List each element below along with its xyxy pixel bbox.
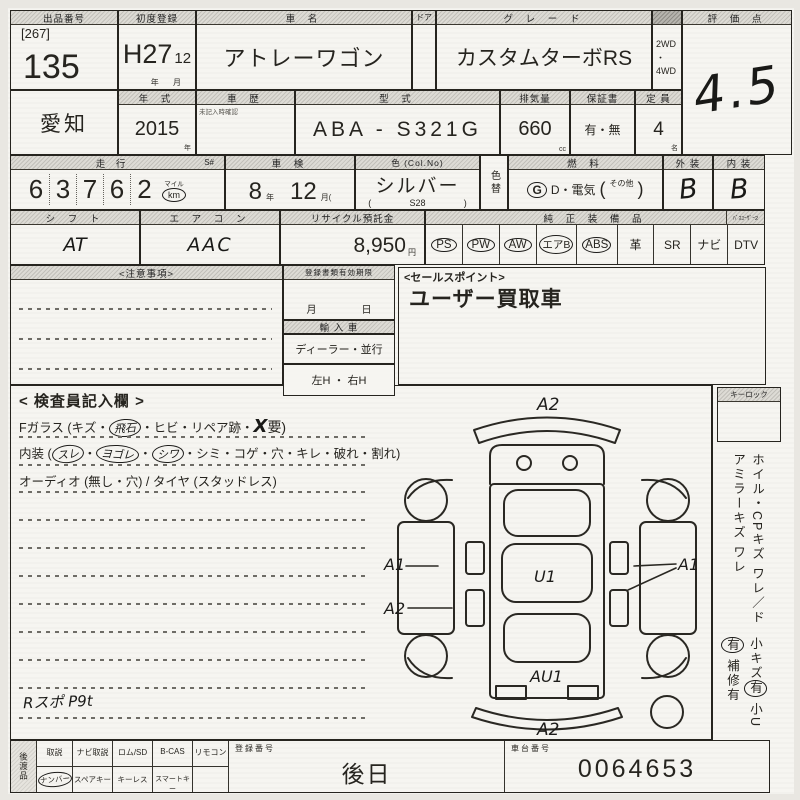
fuel-other: その他 xyxy=(610,178,634,189)
equipment-cell: 純 正 装 備 品 ﾊﾞｽﾕｰｻﾞｰ2 PS PW AW エアB ABS 革 S… xyxy=(425,210,765,265)
notes-label: <注意事項> xyxy=(11,266,282,280)
interior-grade-label: 内 装 xyxy=(714,156,764,170)
score-cell: 評 価 点 4.5 xyxy=(682,10,792,155)
equipment-sunroof: SR xyxy=(653,225,690,264)
import-type-cell: ディーラー・並行 xyxy=(283,334,395,364)
right-door-window xyxy=(610,542,628,574)
exterior-grade-cell: 外 装 B xyxy=(663,155,713,210)
inspector-ruled-line xyxy=(19,631,369,633)
fuel-options: D・電気 xyxy=(551,181,596,198)
warranty-label: 保証書 xyxy=(571,91,634,105)
inspector-ruled-line xyxy=(19,491,369,493)
equipment-abs: ABS xyxy=(582,237,611,253)
door-cell: ドア xyxy=(412,10,436,90)
equipment-aw: AW xyxy=(504,238,532,252)
car-name-cell: 車 名 アトレーワゴン xyxy=(196,10,412,90)
small-dent-label: 小U xyxy=(748,702,762,728)
bottom-band: 後渡品 取説 ナンバー ナビ取説 スペアキー ロム/SD キーレス B-CAS … xyxy=(10,740,770,793)
small-scratch-yes-circled: 有 xyxy=(744,680,767,697)
fglass-mid: ・ヒビ・リペア跡・ xyxy=(141,421,254,435)
equipment-leather: 革 xyxy=(617,225,654,264)
equipment-label: 純 正 装 備 品 xyxy=(543,211,646,225)
region-value: 愛知 xyxy=(11,91,117,154)
inspector-ruled-line xyxy=(19,603,369,605)
warranty-cell: 保証書 有・無 xyxy=(570,90,635,155)
recycle-fee-value: 8,950 xyxy=(353,234,406,258)
drive-dot: ・ xyxy=(656,51,665,64)
rear-glass xyxy=(504,614,590,662)
fuel-label: 燃 料 xyxy=(509,156,662,170)
aircon-label: エ ア コ ン xyxy=(141,211,279,225)
damage-code-roof-u1: U1 xyxy=(534,567,556,586)
interior-grade-cell: 内 装 B xyxy=(713,155,765,210)
door-label: ドア xyxy=(413,11,435,25)
damage-code-right-a1: A1 xyxy=(677,555,699,574)
history-label: 車 歴 xyxy=(197,91,294,105)
damage-code-rear-a2: A2 xyxy=(536,720,559,738)
spare-key-label: スペアキー xyxy=(73,774,112,785)
doc-expiry-month: 月 xyxy=(307,301,317,316)
import-header-cell: 輸 入 車 xyxy=(283,320,395,334)
stamp-circle xyxy=(651,696,683,728)
doc-expiry-day: 日 xyxy=(362,301,372,316)
right-side-panel xyxy=(640,522,696,634)
notes-cell: <注意事項> xyxy=(10,265,283,385)
displacement-unit: cc xyxy=(559,146,566,153)
mileage-digit: 6 xyxy=(104,174,131,205)
color-change-cell: 色替 xyxy=(480,155,508,210)
remote-label: リモコン xyxy=(193,747,228,758)
year-unit: 年 xyxy=(184,143,191,153)
wheel-front-right xyxy=(647,479,689,521)
damage-code-rear-au1: AU1 xyxy=(529,667,563,686)
left-door-window xyxy=(466,542,484,574)
sales-point-value: ユーザー買取車 xyxy=(409,283,563,313)
model-cell: 型 式 ABA - S321G xyxy=(295,90,500,155)
handle-value: 左H ・ 右H xyxy=(284,365,394,395)
shift-cell: シ フ ト AT xyxy=(10,210,140,265)
warranty-value: 有・無 xyxy=(571,105,634,154)
small-dent-yes-circled: 有 xyxy=(721,637,744,654)
interior-circled-scuff: スレ xyxy=(51,443,85,464)
handle-cell: 左H ・ 右H xyxy=(283,364,395,396)
mileage-cell: 走 行 S# 6 3 7 6 2 マイル km xyxy=(10,155,225,210)
equipment-airbag: エアB xyxy=(539,235,573,254)
later-items-label: 後渡品 xyxy=(11,741,37,792)
bcas-label: B-CAS xyxy=(153,747,192,756)
color-label: 色 (Col.No) xyxy=(356,156,479,170)
inspector-hand-note: Rスポ P9t xyxy=(23,690,93,713)
fuel-paren-right: ) xyxy=(638,179,644,200)
wheel-front-left xyxy=(405,479,447,521)
equipment-sub-label: ﾊﾞｽﾕｰｻﾞｰ2 xyxy=(726,211,764,224)
displacement-cell: 排気量 660 cc xyxy=(500,90,570,155)
color-paren-right: ) xyxy=(464,198,467,208)
rom-sd-column: ロム/SD キーレス xyxy=(113,741,153,792)
mileage-digit: 3 xyxy=(50,174,77,205)
front-bumper xyxy=(474,418,620,444)
grade-value: カスタムターボRS xyxy=(437,25,651,89)
grade-cell: グ レ ー ド カスタムターボRS xyxy=(436,10,652,90)
damage-code-left-a2: A2 xyxy=(383,599,405,618)
interior-grade-value: B xyxy=(729,173,750,205)
number-plate-circled: ナンバー xyxy=(37,771,72,789)
region-cell: 愛知 xyxy=(10,90,118,155)
drive-cell: 2WD ・ 4WD xyxy=(652,10,682,90)
capacity-cell: 定 員 4 名 xyxy=(635,90,682,155)
keyless-label: キーレス xyxy=(113,774,152,785)
inspector-title: < 検査員記入欄 > xyxy=(19,390,145,411)
notes-ruled-line xyxy=(19,338,272,340)
notes-ruled-line xyxy=(19,308,272,310)
grade-label: グ レ ー ド xyxy=(437,11,651,25)
fuel-cell: 燃 料 G D・電気 ( その他 ) xyxy=(508,155,663,210)
small-scratch-label: 小キズ xyxy=(748,637,762,681)
equipment-ps: PS xyxy=(431,238,456,252)
first-registration-cell: 初度登録 H27 12 年 月 xyxy=(118,10,196,90)
windshield xyxy=(504,490,590,536)
sidebar: キーロック ホイル・CPキズ ワレ／ドアミラーキズ ワレ 小キズ有 小U有 補修… xyxy=(712,385,792,740)
color-change-label: 色替 xyxy=(481,156,507,209)
recycle-fee-cell: リサイクル預託金 8,950 円 xyxy=(280,210,425,265)
year-label: 年 式 xyxy=(119,91,195,105)
car-name-value: アトレーワゴン xyxy=(197,25,411,89)
car-name-label: 車 名 xyxy=(197,11,411,25)
aircon-value: AAC xyxy=(187,234,232,256)
chassis-number-value: 0064653 xyxy=(505,755,769,784)
manual-column: 取説 ナンバー xyxy=(37,741,73,792)
color-code: S28 xyxy=(409,198,425,208)
sep-dot: ・ xyxy=(84,447,97,461)
chassis-number-box: 車台番号 0064653 xyxy=(505,741,769,792)
interior-suffix: ・シミ・コゲ・穴・キレ・破れ・割れ) xyxy=(184,447,401,461)
import-type-value: ディーラー・並行 xyxy=(284,335,394,363)
keylock-label: キーロック xyxy=(718,388,780,402)
year-cell: 年 式 2015 年 xyxy=(118,90,196,155)
registration-number-box: 登録番号 後日 xyxy=(229,741,505,792)
drive-2wd: 2WD xyxy=(656,39,676,49)
doc-expiry-label: 登録書類有効期限 xyxy=(284,266,394,280)
exterior-grade-value: B xyxy=(677,173,699,206)
capacity-unit: 名 xyxy=(671,143,678,153)
sidebar-note-marks: 小キズ有 小U有 補修有 xyxy=(721,637,767,733)
navi-manual-label: ナビ取説 xyxy=(73,747,112,758)
color-value: シルバー xyxy=(375,171,459,198)
sep-dot: ・ xyxy=(139,447,152,461)
recycle-fee-unit: 円 xyxy=(408,247,416,258)
sidebar-note-wheel-mirror: ホイル・CPキズ ワレ／ドアミラーキズ ワレ xyxy=(721,453,767,633)
first-registration-month: 12 xyxy=(174,50,191,67)
body-outline xyxy=(490,484,604,698)
left-rear-window xyxy=(466,590,484,626)
inspector-ruled-line xyxy=(19,547,369,549)
hood-outline xyxy=(490,445,604,484)
fglass-suffix: 要) xyxy=(267,419,286,435)
shift-label: シ フ ト xyxy=(11,211,139,225)
navi-manual-column: ナビ取説 スペアキー xyxy=(73,741,113,792)
history-cell: 車 歴 未記入時確認 xyxy=(196,90,295,155)
color-paren-left: ( xyxy=(368,198,371,208)
inspector-ruled-line xyxy=(19,519,369,521)
score-label: 評 価 点 xyxy=(683,11,791,25)
lot-number: 135 xyxy=(23,48,80,87)
mileage-digit: 6 xyxy=(23,174,50,205)
bcas-column: B-CAS スマートキー xyxy=(153,741,193,792)
interior-pre: 内装 ( xyxy=(19,447,52,461)
fuel-gasoline-circled: G xyxy=(527,182,546,198)
keylock-box: キーロック xyxy=(717,387,781,442)
fglass-pre: Fガラス (キズ・ xyxy=(19,421,109,435)
inspection-month-unit: 月( xyxy=(321,192,332,203)
car-damage-diagram: A2 A1 A2 U1 A1 AU1 A2 xyxy=(382,390,712,738)
lot-label: 出品番号 xyxy=(11,11,117,25)
damage-code-front: A2 xyxy=(536,395,559,415)
inspector-ruled-line xyxy=(19,436,369,438)
interior-circled-dirt: ヨゴレ xyxy=(96,444,140,464)
equipment-navi: ナビ xyxy=(690,225,727,264)
first-registration-label: 初度登録 xyxy=(119,11,195,25)
repair-yes-label: 補修有 xyxy=(725,659,739,703)
displacement-label: 排気量 xyxy=(501,91,569,105)
first-registration-unit: 年 月 xyxy=(151,77,187,88)
inspector-audio-line: オーディオ (無し・穴) / タイヤ (スタッドレス) xyxy=(19,471,277,490)
notes-ruled-line xyxy=(19,368,272,370)
inspection-cell: 車 検 8 年 12 月( xyxy=(225,155,355,210)
registration-number-label: 登録番号 xyxy=(235,743,275,754)
equipment-pw: PW xyxy=(467,238,496,252)
interior-circled-wrinkle: シワ xyxy=(151,444,184,464)
score-value: 4.5 xyxy=(689,54,786,125)
lot-bracket: [267] xyxy=(21,26,50,41)
mileage-digit: 7 xyxy=(77,174,104,205)
mileage-unit-km-circled: km xyxy=(162,188,186,202)
inspection-label: 車 検 xyxy=(226,156,354,170)
inspector-interior-line: 内装 (スレ・ヨゴレ・シワ・シミ・コゲ・穴・キレ・破れ・割れ) xyxy=(19,443,400,463)
history-note: 未記入時確認 xyxy=(199,106,238,116)
fglass-hand-x: X xyxy=(254,416,268,437)
inspector-ruled-line xyxy=(19,575,369,577)
inspection-month: 12 xyxy=(290,181,317,203)
doc-expiry-cell: 登録書類有効期限 月 日 xyxy=(283,265,395,320)
model-label: 型 式 xyxy=(296,91,499,105)
color-cell: 色 (Col.No) シルバー ( S28 ) xyxy=(355,155,480,210)
fuel-paren-left: ( xyxy=(600,179,606,200)
sales-point-cell: <セールスポイント> ユーザー買取車 xyxy=(398,267,766,385)
mileage-digit: 2 xyxy=(131,174,158,205)
hood-detail-circle xyxy=(517,456,531,470)
drive-4wd: 4WD xyxy=(656,66,676,76)
mileage-unit-miles: マイル xyxy=(164,178,184,188)
equipment-dtv: DTV xyxy=(727,225,764,264)
mileage-label: 走 行 xyxy=(96,156,130,170)
damage-code-left-a1: A1 xyxy=(383,555,405,574)
registration-number-value: 後日 xyxy=(229,755,504,789)
remote-column: リモコン xyxy=(193,741,229,792)
left-side-panel xyxy=(398,522,454,634)
inspector-ruled-line xyxy=(19,659,369,661)
inspector-ruled-line xyxy=(19,717,369,719)
capacity-label: 定 員 xyxy=(636,91,681,105)
import-label: 輸 入 車 xyxy=(284,321,394,333)
chassis-number-label: 車台番号 xyxy=(511,743,551,754)
wheel-rear-right xyxy=(647,635,689,677)
inspector-ruled-line xyxy=(19,687,369,689)
inspector-ruled-line xyxy=(19,464,369,466)
smart-key-label: スマートキー xyxy=(153,774,192,794)
recycle-fee-label: リサイクル預託金 xyxy=(281,211,424,225)
rom-sd-label: ロム/SD xyxy=(113,747,152,758)
inspection-year-unit: 年 xyxy=(266,192,274,203)
annotation-line xyxy=(628,568,676,590)
exterior-grade-label: 外 装 xyxy=(664,156,712,170)
auction-sheet: 出品番号 [267] 135 初度登録 H27 12 年 月 車 名 アトレーワ… xyxy=(8,8,794,794)
shift-value: AT xyxy=(63,234,86,256)
manual-label: 取説 xyxy=(37,747,72,758)
wheel-rear-left xyxy=(405,635,447,677)
right-rear-window xyxy=(610,590,628,626)
mileage-s-label: S# xyxy=(204,158,214,167)
lot-cell: 出品番号 [267] 135 xyxy=(10,10,118,90)
inspector-fglass-line: Fガラス (キズ・飛石・ヒビ・リペア跡・X要) xyxy=(19,416,286,437)
aircon-cell: エ ア コ ン AAC xyxy=(140,210,280,265)
first-registration-era: H27 xyxy=(123,39,173,70)
sidebar-notes: ホイル・CPキズ ワレ／ドアミラーキズ ワレ 小キズ有 小U有 補修有 xyxy=(721,453,767,733)
inspection-year: 8 xyxy=(249,181,262,203)
model-value: ABA - S321G xyxy=(296,105,499,154)
hood-detail-circle xyxy=(563,456,577,470)
